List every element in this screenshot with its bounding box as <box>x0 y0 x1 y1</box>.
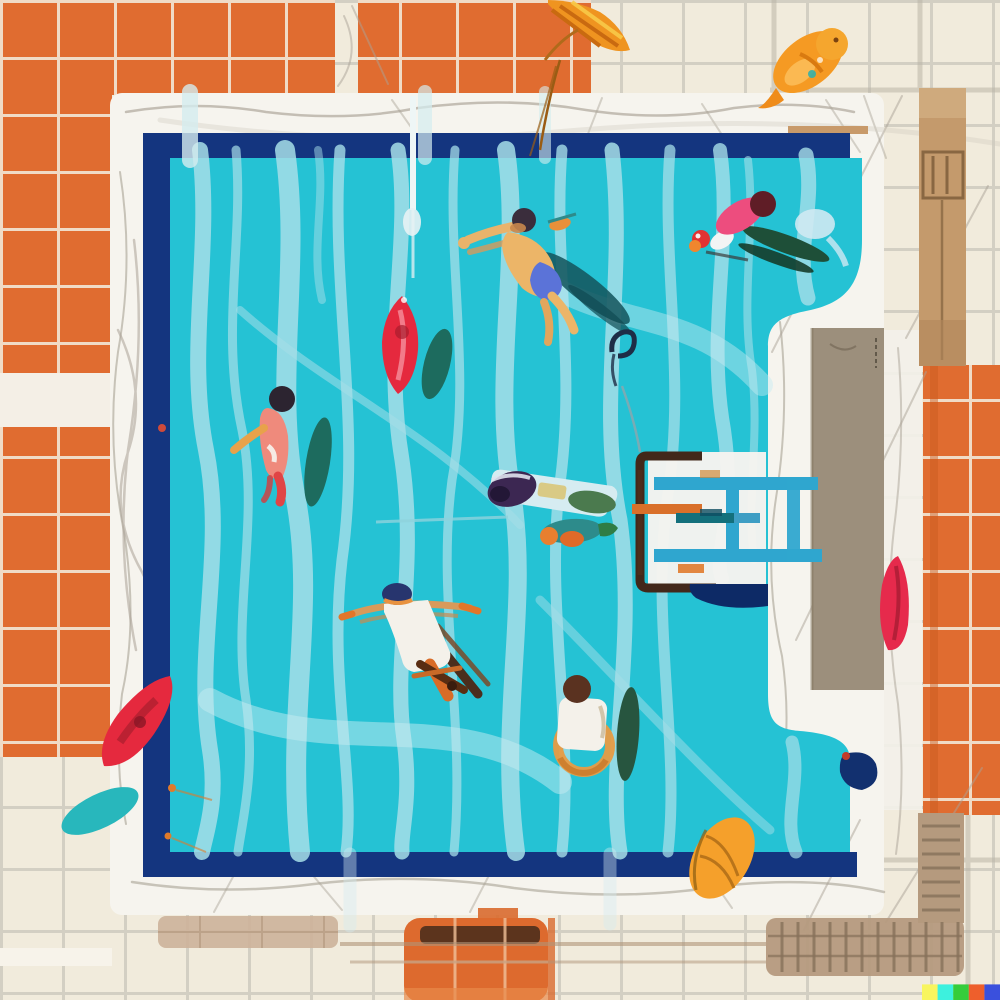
swimmer-head <box>750 191 776 217</box>
white-band-left <box>0 373 112 427</box>
swimmer-head <box>563 675 591 703</box>
orange-tile-shade <box>930 365 938 815</box>
watermark-swatch <box>969 984 985 1000</box>
watermark-swatch <box>984 984 1000 1000</box>
deck-shadow-strip <box>158 916 338 948</box>
watermark-swatch <box>953 984 969 1000</box>
orange-tiles-top-left <box>0 0 335 95</box>
side-platform <box>812 328 884 690</box>
watermark-swatch <box>938 984 954 1000</box>
watermark-swatch <box>922 984 938 1000</box>
stone-column <box>919 88 966 366</box>
pool-illustration-svg <box>0 0 1000 1000</box>
orange-mat <box>404 908 555 1000</box>
pool-illustration <box>0 0 1000 1000</box>
white-band-bottom-left <box>0 948 112 966</box>
splash <box>795 209 835 239</box>
color-signature-watermark <box>922 984 1000 1000</box>
swimmer-head <box>269 386 295 412</box>
swimmer-shirt <box>556 696 608 751</box>
wood-strip <box>788 126 868 134</box>
